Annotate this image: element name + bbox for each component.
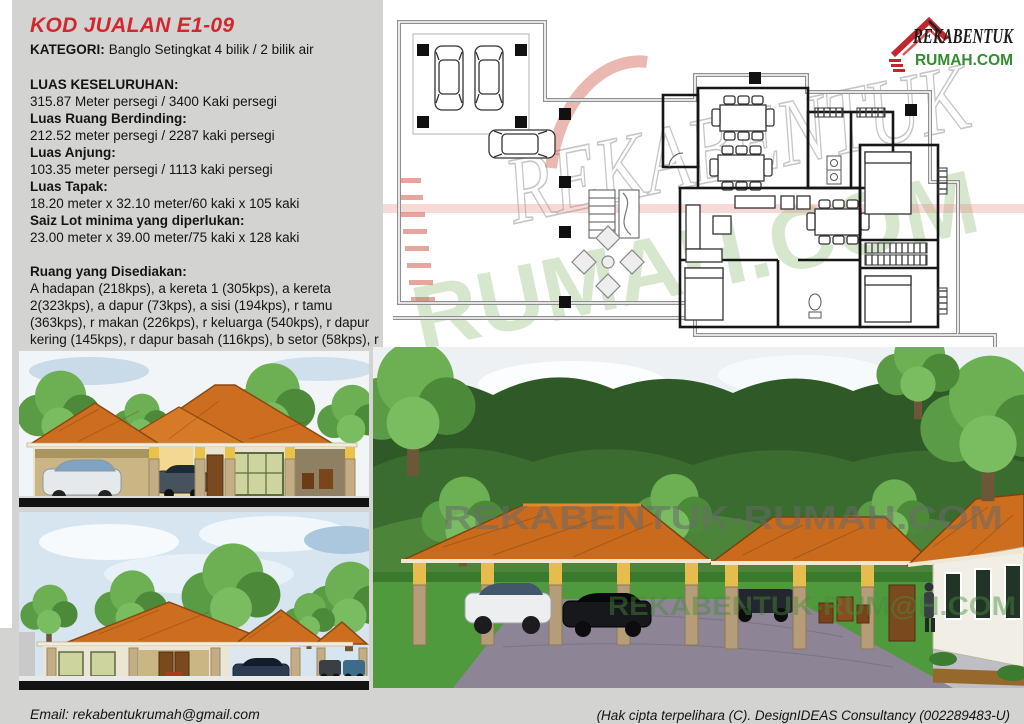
logo-subtitle: RUMAH.COM — [915, 52, 1013, 69]
car-icon — [489, 130, 555, 158]
spec-value: 103.35 meter persegi / 1113 kaki persegi — [30, 161, 383, 178]
spec-label: Luas Ruang Berdinding: — [30, 110, 383, 127]
category-value: Banglo Setingkat 4 bilik / 2 bilik air — [109, 42, 314, 57]
car-icon — [435, 46, 463, 110]
spec-label: Luas Tapak: — [30, 178, 383, 195]
rekabentuk-logo: REKABENTUK RUMAH.COM — [883, 13, 1018, 77]
contact-email[interactable]: Email: rekabentukrumah@gmail.com — [30, 706, 260, 722]
ground-strip — [19, 498, 369, 507]
rooms-label: Ruang yang Disediakan: — [30, 263, 383, 280]
carport-two-cars — [413, 34, 529, 134]
category-label: KATEGORI: — [30, 42, 105, 57]
car-icon — [475, 46, 503, 110]
info-panel: KOD JUALAN E1-09 KATEGORI:Banglo Setingk… — [12, 0, 383, 347]
spec-label: Luas Anjung: — [30, 144, 383, 161]
spec-value: 23.00 meter x 39.00 meter/75 kaki x 128 … — [30, 229, 383, 246]
render-watermark-green: REKABENTUK-RUM@H.COM — [608, 591, 1016, 621]
render-rear-elevation — [19, 512, 369, 690]
ladder-marks-icon — [889, 59, 905, 72]
spec-value: 315.87 Meter persegi / 3400 Kaki persegi — [30, 93, 383, 110]
spec-label: LUAS KESELURUHAN: — [30, 76, 383, 93]
ladder-marks-icon — [397, 178, 435, 302]
copyright-notice: (Hak cipta terpelihara (C). DesignIDEAS … — [597, 708, 1010, 723]
ground-strip — [19, 681, 369, 690]
spec-value: 18.20 meter x 32.10 meter/60 kaki x 105 … — [30, 195, 383, 212]
category-line: KATEGORI:Banglo Setingkat 4 bilik / 2 bi… — [30, 41, 383, 58]
floor-plan-panel: REKABENTUK RUMAH.COM — [383, 0, 1024, 347]
spec-value: 212.52 meter persegi / 2287 kaki persegi — [30, 127, 383, 144]
page-margin — [0, 0, 12, 628]
page-title: KOD JUALAN E1-09 — [30, 14, 383, 38]
brochure-page: KOD JUALAN E1-09 KATEGORI:Banglo Setingk… — [0, 0, 1024, 724]
logo-title: REKABENTUK — [912, 24, 1014, 48]
spec-label: Saiz Lot minima yang diperlukan: — [30, 212, 383, 229]
render-front-elevation — [19, 351, 369, 507]
render-watermark-gray: REKABENTUK-RUMAH.COM — [443, 499, 1003, 536]
render-perspective: REKABENTUK-RUMAH.COM REKABENTUK-RUM@H.CO… — [373, 347, 1024, 688]
